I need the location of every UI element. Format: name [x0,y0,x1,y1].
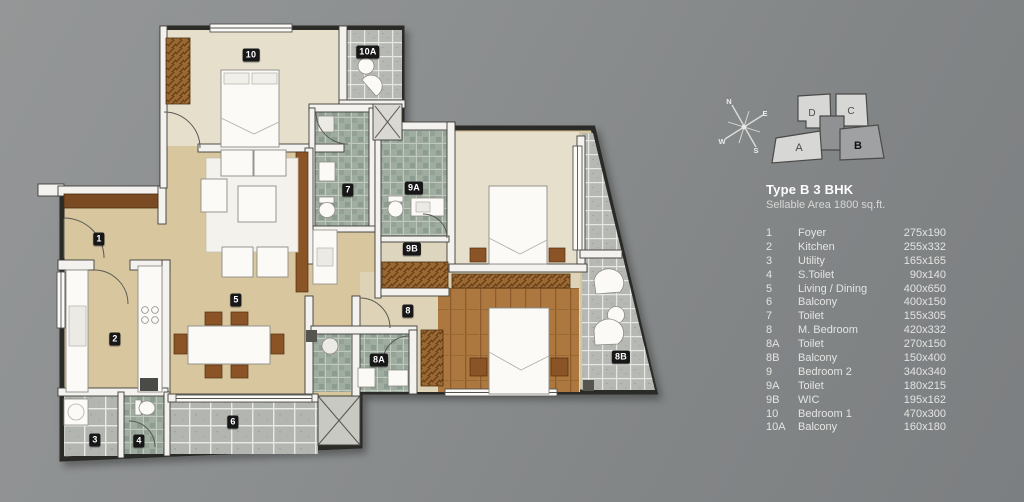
balcony6-floor [170,400,318,454]
legend-room-name: Balcony [798,421,886,433]
compass-w: W [718,137,726,146]
legend-room-dims: 470x300 [886,408,946,420]
legend-room-dims: 275x190 [886,227,946,239]
legend-row: 9 Bedroom 2 340x340 [766,366,946,380]
lounger-8b-2 [594,319,624,345]
lounger-8b-1 [594,269,624,294]
legend-room-dims: 195x162 [886,394,946,406]
legend-room-dims: 165x165 [886,255,946,267]
legend-room-dims: 420x332 [886,324,946,336]
legend-room-name: Balcony [798,296,886,308]
armchair-living [201,179,227,212]
room-chip-8: 8 [402,305,413,318]
legend-room-dims: 255x332 [886,241,946,253]
legend-room-dims: 160x180 [886,421,946,433]
room-chip-3: 3 [89,434,100,447]
chair-living-2 [257,247,288,277]
keyplan-label-b: B [854,140,862,152]
legend-row: 10A Balcony 160x180 [766,421,946,435]
dining-chair [205,312,222,325]
dining-chair [231,312,248,325]
legend-room-number: 4 [766,269,798,281]
legend-room-dims: 270x150 [886,338,946,350]
compass-n: N [726,97,731,106]
legend-room-name: S.Toilet [798,269,886,281]
legend-room-dims: 400x650 [886,283,946,295]
room-chip-9a: 9A [405,182,423,195]
dining-chair [271,334,284,354]
legend-room-name: Toilet [798,380,886,392]
basin-10a [358,58,374,74]
legend-room-number: 1 [766,227,798,239]
legend-title: Type B 3 BHK [766,182,946,197]
nightstand-mbedroom-right [551,358,568,376]
nightstand-bedroom2-left [470,248,486,262]
wc-toilet7 [319,203,335,218]
room-chip-10a: 10A [356,46,379,59]
legend-rows: 1 Foyer 275x190 2 Kitchen 255x332 3 Util… [766,227,946,435]
legend-room-number: 2 [766,241,798,253]
legend-room-number: 9B [766,394,798,406]
legend-room-name: Kitchen [798,241,886,253]
basin-toilet7 [319,162,335,181]
legend-row: 8 M. Bedroom 420x332 [766,324,946,338]
legend-room-number: 10 [766,408,798,420]
duct-8a [306,330,317,342]
wc-8a [358,368,375,387]
bed-bedroom2 [489,186,547,264]
legend-room-dims: 150x400 [886,352,946,364]
wc-toilet9a [388,201,403,217]
dining-table [188,326,270,364]
duct-kitchen [140,378,158,391]
wardrobe-mbedroom-left [421,330,443,386]
wardrobe-mbedroom-top [452,274,570,288]
basin-8a [388,370,408,386]
room-chip-2: 2 [109,333,120,346]
duct-8b [583,380,594,391]
legend-room-dims: 400x150 [886,296,946,308]
floorplan-screenshot: N E S W D C A B 1 2 3 4 5 6 7 8 8A 8B 9A… [0,0,1024,502]
washer-utility [64,399,88,425]
legend-room-number: 7 [766,310,798,322]
legend-row: 5 Living / Dining 400x650 [766,283,946,297]
room-chip-10: 10 [243,49,260,62]
legend-row: 9B WIC 195x162 [766,394,946,408]
room-chip-7: 7 [342,184,353,197]
legend-room-name: WIC [798,394,886,406]
legend-row: 8A Toilet 270x150 [766,338,946,352]
wardrobe-bedroom1 [166,38,190,104]
legend-room-number: 10A [766,421,798,433]
legend-row: 4 S.Toilet 90x140 [766,269,946,283]
wc-toilet4 [139,401,155,415]
keyplan: D C A B [772,94,884,163]
legend-row: 6 Balcony 400x150 [766,296,946,310]
room-chip-5: 5 [230,294,241,307]
legend-room-dims: 180x215 [886,380,946,392]
legend-row: 9A Toilet 180x215 [766,380,946,394]
legend-room-number: 3 [766,255,798,267]
keyplan-label-a: A [795,142,803,154]
keyplan-label-d: D [808,108,815,119]
room-chip-8a: 8A [370,354,388,367]
legend-room-dims: 340x340 [886,366,946,378]
compass-s: S [753,146,758,155]
legend-room-name: Balcony [798,352,886,364]
sofa-seat-2 [254,150,286,176]
legend-room-number: 9A [766,380,798,392]
chair-living-1 [222,247,253,277]
room-chip-1: 1 [93,233,104,246]
legend-room-name: Living / Dining [798,283,886,295]
sofa-seat-1 [221,150,253,176]
compass-icon: N E S W [718,97,767,155]
bed-mbedroom [489,308,549,394]
legend-room-name: Bedroom 2 [798,366,886,378]
legend-room-number: 6 [766,296,798,308]
shower-toilet7 [318,116,334,132]
legend-row: 3 Utility 165x165 [766,255,946,269]
dining-chair [231,365,248,378]
legend-row: 7 Toilet 155x305 [766,310,946,324]
legend-panel: Type B 3 BHK Sellable Area 1800 sq.ft. 1… [766,182,946,435]
bed-bedroom1 [221,70,279,147]
legend-room-name: Foyer [798,227,886,239]
legend-room-number: 8A [766,338,798,350]
shower-8a [322,338,338,354]
dining-chair [205,365,222,378]
legend-row: 8B Balcony 150x400 [766,352,946,366]
nightstand-bedroom2-right [549,248,565,262]
wardrobe-9b [382,262,448,288]
kitchen-counter-right [138,266,162,392]
legend-room-number: 5 [766,283,798,295]
dining-chair [174,334,187,354]
legend-room-number: 8 [766,324,798,336]
legend-room-number: 9 [766,366,798,378]
kitchen-sink [69,306,86,346]
legend-row: 1 Foyer 275x190 [766,227,946,241]
room-chip-6: 6 [227,416,238,429]
room-chip-4: 4 [133,435,144,448]
legend-row: 10 Bedroom 1 470x300 [766,408,946,422]
legend-room-dims: 90x140 [886,269,946,281]
compass-e: E [762,109,767,118]
room-chip-9b: 9B [403,243,421,256]
legend-room-name: M. Bedroom [798,324,886,336]
legend-room-dims: 155x305 [886,310,946,322]
keyplan-unit-b [840,125,884,160]
keyplan-label-c: C [847,106,854,117]
coffee-table [238,186,276,222]
nightstand-mbedroom-left [470,358,487,376]
room-chip-8b: 8B [612,351,630,364]
legend-room-name: Bedroom 1 [798,408,886,420]
legend-row: 2 Kitchen 255x332 [766,241,946,255]
legend-room-number: 8B [766,352,798,364]
legend-room-name: Utility [798,255,886,267]
legend-room-name: Toilet [798,310,886,322]
cabinet-foyer [64,194,158,208]
legend-subtitle: Sellable Area 1800 sq.ft. [766,199,946,211]
legend-room-name: Toilet [798,338,886,350]
